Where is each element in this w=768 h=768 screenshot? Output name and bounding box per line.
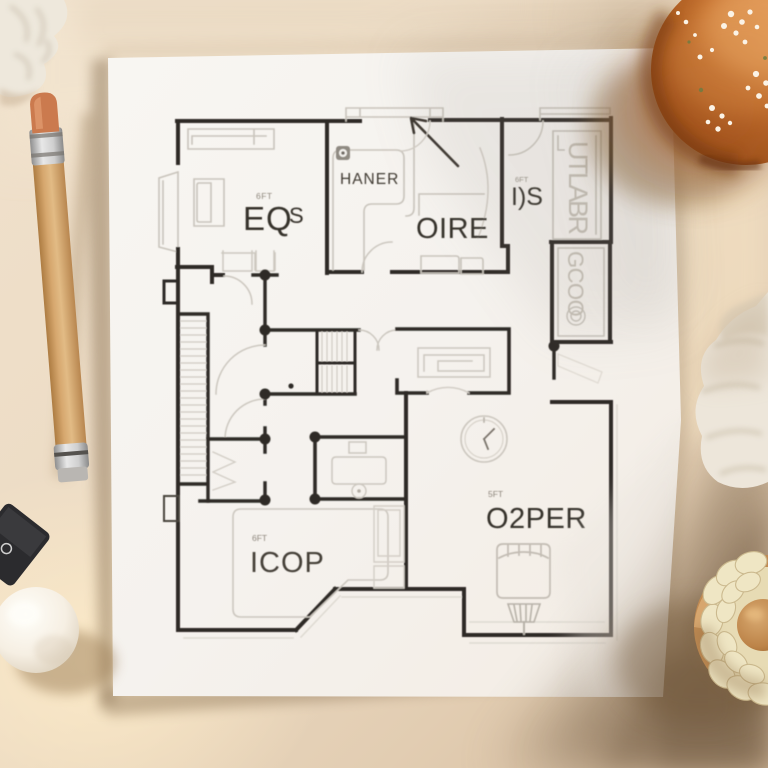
svg-text:ICOP: ICOP (250, 547, 325, 579)
svg-text:5FT: 5FT (488, 489, 503, 499)
svg-text:O2PER: O2PER (486, 503, 587, 535)
svg-text:HANER: HANER (340, 171, 399, 188)
svg-text:6FT: 6FT (252, 533, 267, 543)
svg-text:EQ: EQ (243, 200, 293, 237)
svg-text:S: S (289, 203, 304, 228)
